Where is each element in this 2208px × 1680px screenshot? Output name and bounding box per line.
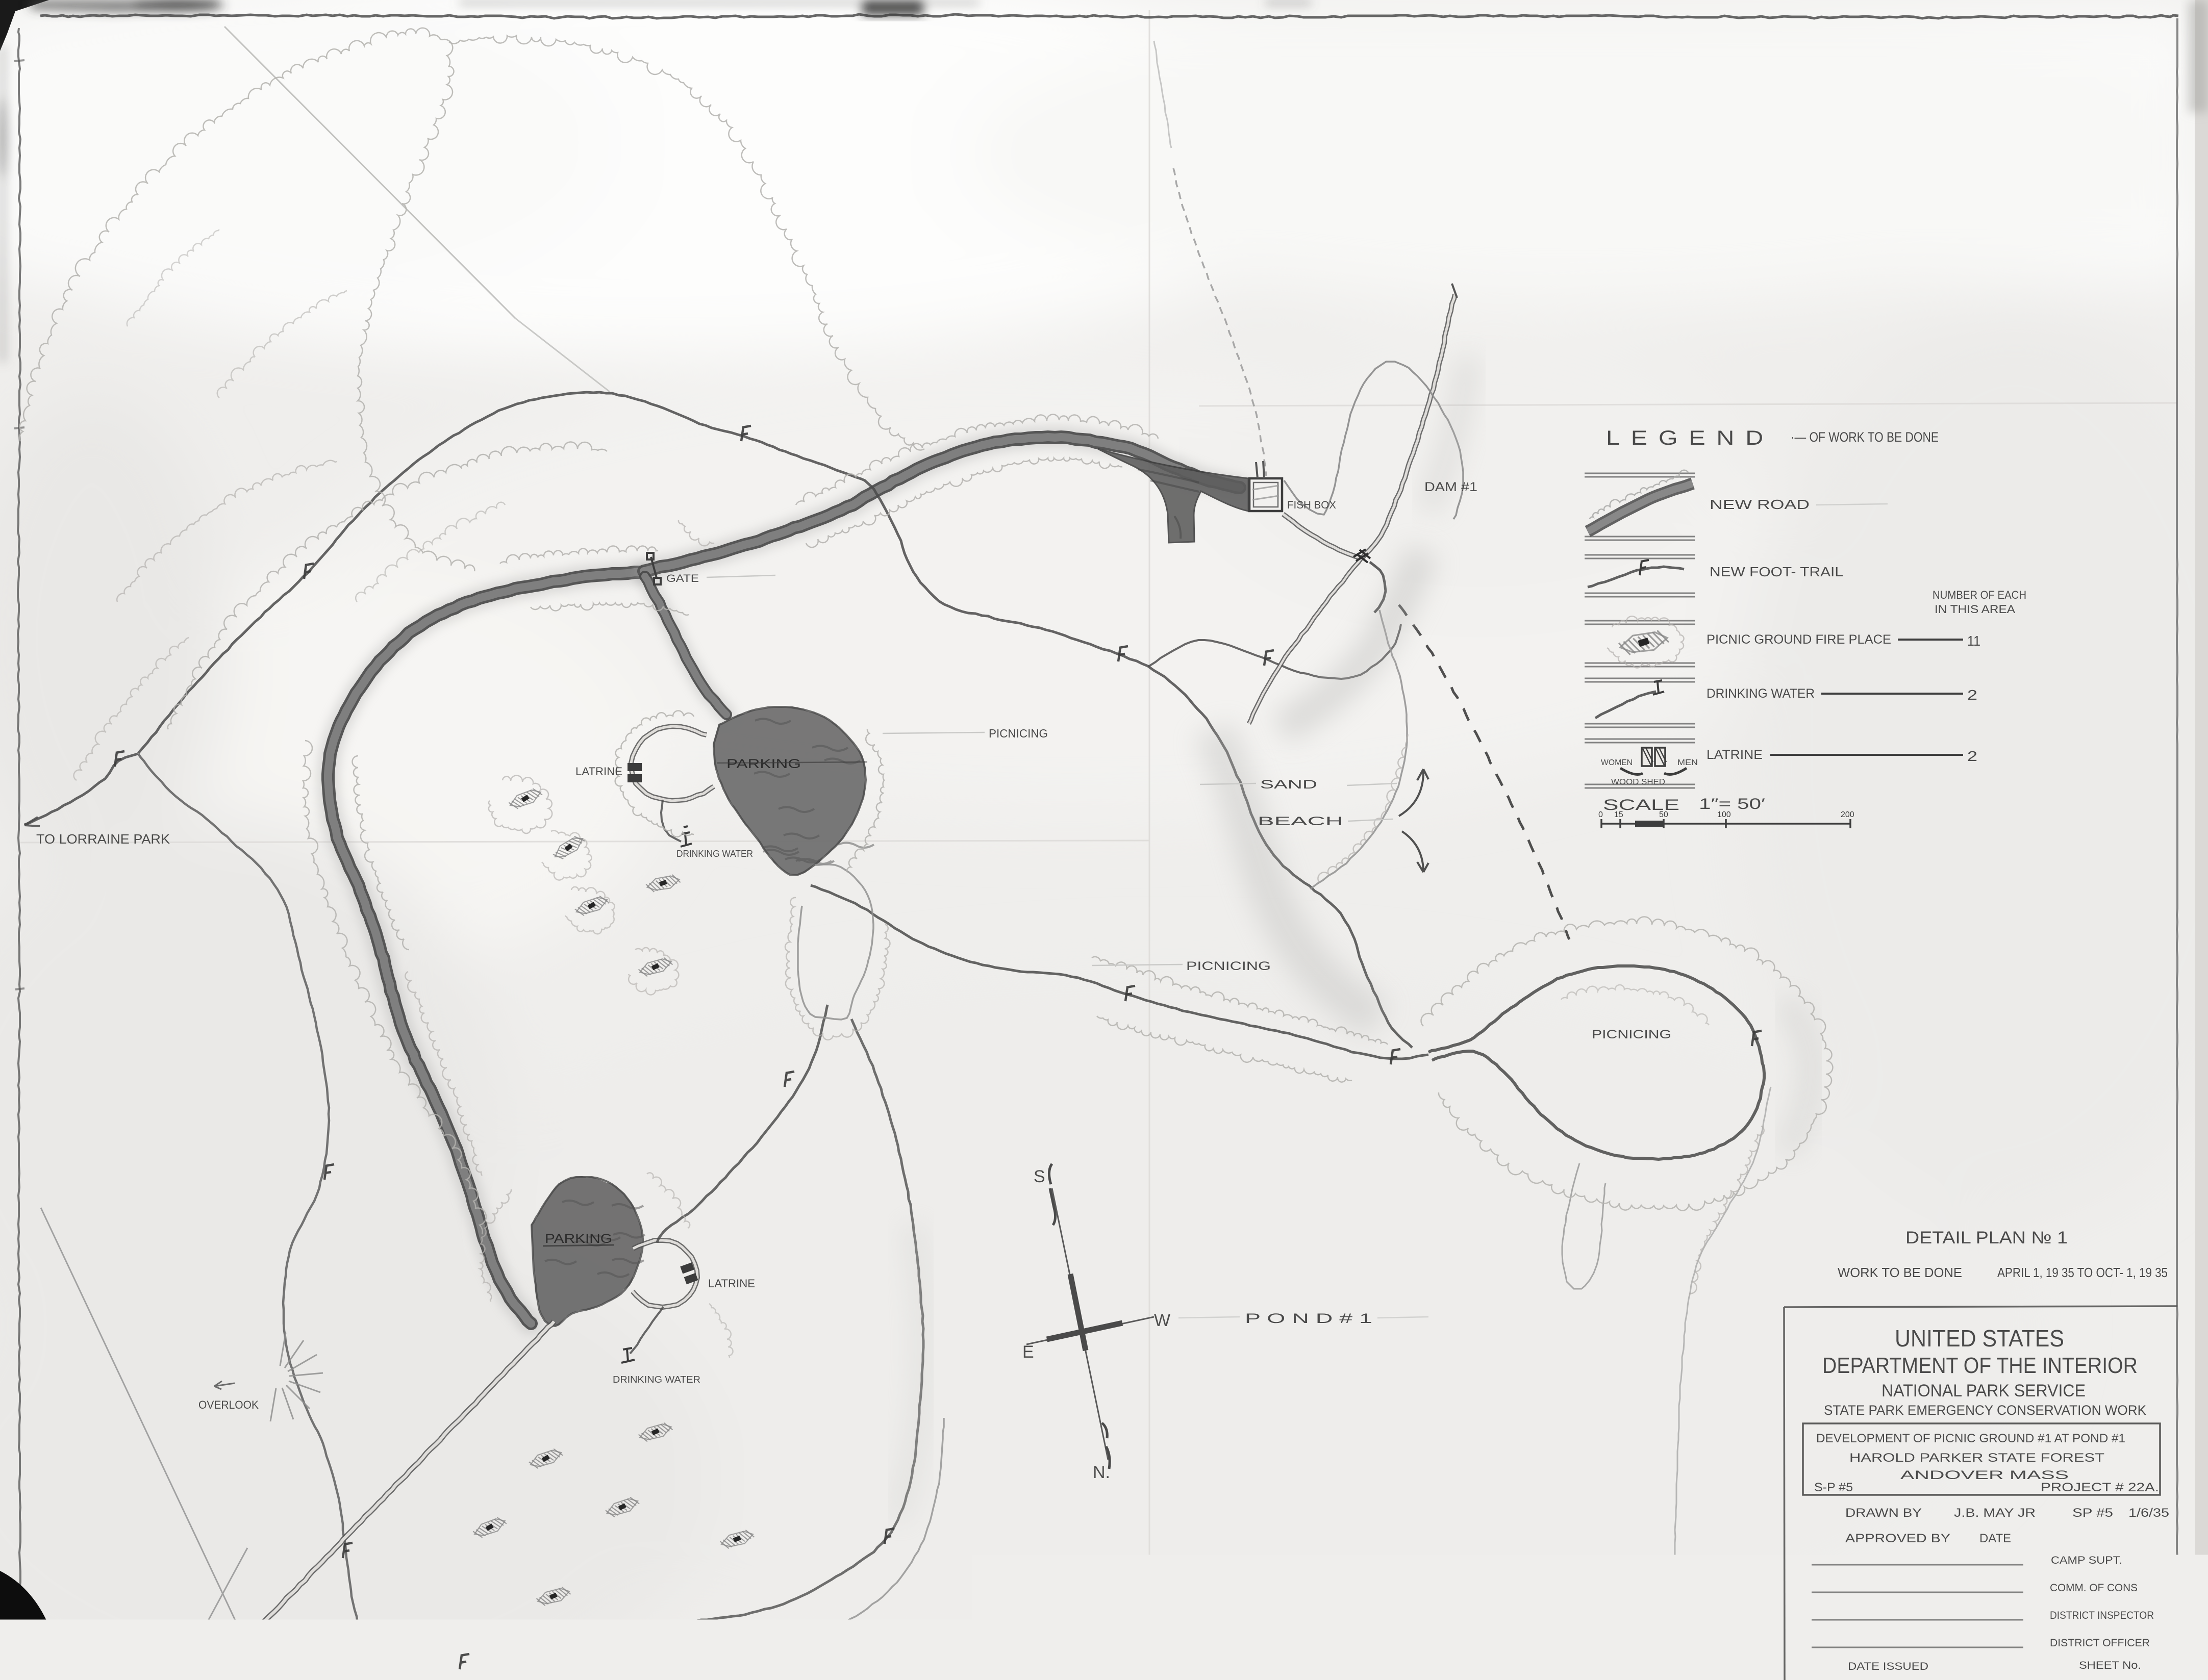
- svg-text:ANDOVER MASS: ANDOVER MASS: [1900, 1468, 2069, 1482]
- svg-text:S: S: [1034, 1167, 1045, 1186]
- svg-text:DRAWN BY: DRAWN BY: [1845, 1506, 1922, 1520]
- svg-text:HAROLD PARKER STATE FO: HAROLD PARKER STATE FOREST: [1849, 1451, 2104, 1465]
- svg-text:SHEET No.: SHEET No.: [2079, 1660, 2141, 1671]
- svg-text:IN THIS AREA: IN THIS AREA: [1935, 603, 2015, 616]
- svg-text:200: 200: [1841, 810, 1854, 819]
- svg-text:PROJECT # 22A.: PROJECT # 22A.: [2041, 1481, 2159, 1494]
- svg-text:PICNIC GROUND FIRE PLACE: PICNIC GROUND FIRE PLACE: [1707, 632, 1891, 647]
- svg-text:LATRINE: LATRINE: [575, 765, 622, 778]
- svg-text:PICNICING: PICNICING: [1186, 959, 1271, 973]
- svg-text:S-P #5: S-P #5: [1814, 1481, 1853, 1494]
- svg-text:1″= 50′: 1″= 50′: [1699, 796, 1766, 812]
- svg-text:DISTRICT OFFICER: DISTRICT OFFICER: [2050, 1637, 2150, 1649]
- svg-text:NATIONAL PARK SERVICE: NATIONAL PARK SERVICE: [1881, 1381, 2086, 1401]
- svg-text:0: 0: [1598, 810, 1603, 819]
- svg-text:DETAIL PLAN № 1: DETAIL PLAN № 1: [1905, 1228, 2068, 1248]
- svg-text:SP #5: SP #5: [2072, 1506, 2113, 1520]
- svg-text:DISTRICT INSPECTOR: DISTRICT INSPECTOR: [2050, 1610, 2154, 1621]
- svg-text:DRINKING WATER: DRINKING WATER: [676, 849, 753, 859]
- svg-text:NUMBER OF EACH: NUMBER OF EACH: [1933, 589, 2026, 601]
- svg-text:TO LORRAINE PARK: TO LORRAINE PARK: [36, 831, 170, 847]
- svg-text:2: 2: [1967, 748, 1977, 764]
- svg-text:APRIL 1, 19 35 TO OCT- 1, 19 3: APRIL 1, 19 35 TO OCT- 1, 19 35: [1997, 1265, 2168, 1280]
- svg-text:NEW FOOT- TRAIL: NEW FOOT- TRAIL: [1710, 564, 1843, 579]
- svg-text:W: W: [1154, 1311, 1170, 1330]
- svg-text:·— OF WORK TO BE DONE: ·— OF WORK TO BE DONE: [1791, 429, 1939, 445]
- svg-text:PARKING: PARKING: [726, 757, 801, 771]
- svg-text:DEVELOPMENT OF PICNIC GROUND #: DEVELOPMENT OF PICNIC GROUND #1 AT POND …: [1816, 1432, 2125, 1445]
- svg-text:N.: N.: [1093, 1463, 1110, 1482]
- svg-text:FISH BOX: FISH BOX: [1287, 499, 1336, 511]
- svg-text:GATE: GATE: [666, 573, 699, 584]
- svg-text:LATRINE: LATRINE: [708, 1277, 755, 1290]
- svg-text:P O N D # 1: P O N D # 1: [1245, 1311, 1372, 1326]
- svg-text:PARKING: PARKING: [545, 1232, 612, 1246]
- svg-text:COMM. OF CONS: COMM. OF CONS: [2050, 1582, 2138, 1594]
- svg-text:PICNICING: PICNICING: [989, 727, 1048, 740]
- svg-text:UNITED STATES: UNITED STATES: [1895, 1325, 2064, 1352]
- svg-text:DAM #1: DAM #1: [1424, 480, 1477, 494]
- svg-text:DRINKING WATER: DRINKING WATER: [613, 1374, 700, 1385]
- svg-text:NEW ROAD: NEW ROAD: [1710, 497, 1810, 512]
- svg-text:11: 11: [1967, 633, 1980, 649]
- svg-text:1/6/35: 1/6/35: [2128, 1506, 2169, 1520]
- svg-text:50: 50: [1659, 810, 1668, 819]
- svg-text:J.B. MAY JR: J.B. MAY JR: [1954, 1506, 2036, 1520]
- svg-text:100: 100: [1717, 810, 1731, 819]
- svg-text:PICNICING: PICNICING: [1592, 1028, 1671, 1041]
- svg-text:APPROVED BY: APPROVED BY: [1845, 1532, 1950, 1545]
- svg-text:DEPARTMENT OF THE INTERIOR: DEPARTMENT OF THE INTERIOR: [1822, 1353, 2138, 1378]
- svg-text:SAND: SAND: [1260, 778, 1317, 792]
- svg-text:DRINKING WATER: DRINKING WATER: [1707, 686, 1815, 701]
- svg-text:DATE: DATE: [1979, 1532, 2011, 1545]
- svg-text:E: E: [1022, 1342, 1034, 1362]
- svg-text:WOMEN: WOMEN: [1601, 758, 1633, 767]
- svg-text:OVERLOOK: OVERLOOK: [198, 1398, 259, 1411]
- svg-text:BEACH: BEACH: [1258, 814, 1343, 828]
- svg-text:15: 15: [1614, 810, 1623, 819]
- svg-text:2: 2: [1967, 687, 1977, 703]
- svg-text:CAMP SUPT.: CAMP SUPT.: [2051, 1555, 2122, 1566]
- svg-text:DATE ISSUED: DATE ISSUED: [1848, 1661, 1928, 1672]
- svg-text:STATE PARK EMERGENCY CONSERVAT: STATE PARK EMERGENCY CONSERVATION WORK: [1824, 1403, 2146, 1418]
- svg-text:LEGEND: LEGEND: [1606, 427, 1774, 449]
- svg-text:WOOD SHED: WOOD SHED: [1611, 778, 1665, 786]
- svg-text:LATRINE: LATRINE: [1707, 748, 1763, 762]
- svg-text:MEN: MEN: [1677, 758, 1698, 767]
- svg-text:WORK TO BE DONE: WORK TO BE DONE: [1838, 1265, 1962, 1280]
